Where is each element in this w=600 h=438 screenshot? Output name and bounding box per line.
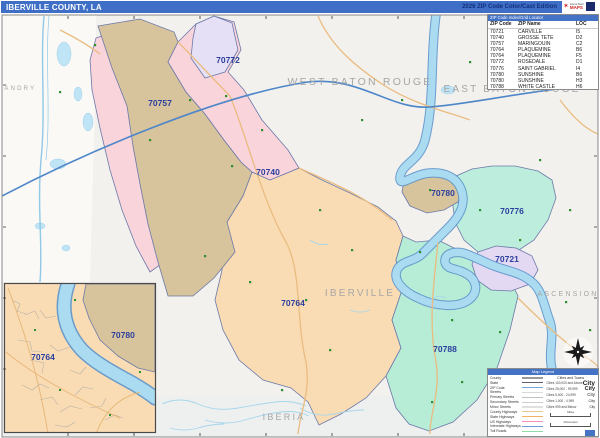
city-label: Cities 5,000 - 24,999 (546, 393, 575, 397)
logo-text: HomeTown MAPS (570, 3, 584, 10)
zip-code-index-table: ZIP Code Index/Grid Locator ZIP Code ZIP… (487, 14, 599, 90)
legend-mini-badge (585, 430, 595, 436)
col-zip-name: ZIP Name (518, 21, 576, 28)
zip-label-70788: 70788 (433, 344, 457, 354)
cell-zip: 70788 (488, 84, 518, 90)
legend-label: State (490, 381, 522, 385)
scale-line (550, 416, 591, 417)
legend-line-sample (522, 416, 543, 417)
publisher-logo: ✶ HomeTown MAPS (562, 0, 599, 13)
table-row: 70788WHITE CASTLEH6 (488, 84, 598, 90)
legend-label: Minor Streets (490, 405, 522, 409)
legend-line-sample (522, 397, 543, 398)
city-sample: City (590, 405, 596, 409)
legend-line-sample (522, 406, 543, 407)
legend-label: Streets (490, 390, 522, 394)
parish-label-west-baton-rouge: WEST BATON ROUGE (288, 76, 433, 88)
zip-label-70776: 70776 (500, 206, 524, 216)
edition-label: 2026 ZIP Code Color/Cast Edition (462, 4, 563, 10)
scale-label: Miles (546, 410, 595, 414)
scale-line (550, 426, 591, 427)
zip-label-70772: 70772 (216, 55, 240, 65)
legend-label: ZIP Code (490, 386, 522, 390)
map-document: WEST BATON ROUGE EAST BATON ROUGE IBERVI… (0, 0, 600, 438)
legend-label: County Highways (490, 410, 522, 414)
legend-line-sample (522, 382, 543, 383)
legend-label: County (490, 376, 522, 380)
legend-label: US Highways (490, 420, 522, 424)
title-bar: IBERVILLE COUNTY, LA 2026 ZIP Code Color… (1, 1, 563, 13)
map-legend: Map Legend County State ZIP Code Streets… (487, 368, 599, 437)
legend-road-items: County State ZIP Code Streets Primary St… (488, 375, 545, 438)
inset-zip-label-70764: 70764 (31, 352, 55, 362)
legend-label: Primary Streets (490, 395, 522, 399)
legend-line-sample (522, 387, 543, 388)
scale-bar-kilometers: Kilometers (546, 420, 595, 429)
city-sample: City (587, 392, 595, 397)
legend-line-sample (522, 421, 543, 422)
inset-map: 70764 70780 (5, 284, 155, 434)
parish-label-iberia: IBERIA (263, 412, 306, 422)
zip-label-70721: 70721 (495, 254, 519, 264)
parish-label-ascension: ASCENSION (537, 291, 598, 298)
logo-brand-main: MAPS (570, 6, 584, 11)
legend-row: Toll Roads (490, 429, 543, 434)
parish-label-st-landry: ST. LANDRY (0, 86, 36, 92)
legend-label: Interstate Highways (490, 424, 522, 428)
cell-name: WHITE CASTLE (518, 84, 576, 90)
legend-label: State Highways (490, 415, 522, 419)
zip-label-70740: 70740 (256, 167, 280, 177)
west-outside-area (2, 15, 96, 282)
city-label: Cities 999 and Below (546, 405, 576, 409)
zip-label-70757: 70757 (148, 98, 172, 108)
legend-cities-column: Cities and Towns Cities 100,000 and Abov… (545, 375, 598, 438)
scale-label: Kilometers (546, 420, 595, 424)
zip-table-column-headers: ZIP Code ZIP Name LOC (488, 21, 598, 29)
zip-label-70780: 70780 (431, 188, 455, 198)
city-row: Cities 999 and BelowCity (546, 404, 595, 410)
logo-block (586, 2, 595, 11)
legend-line-sample (522, 377, 543, 378)
col-loc: LOC (576, 21, 594, 28)
legend-line-sample (522, 402, 543, 403)
city-label: Cities 25,000 - 99,999 (546, 387, 577, 391)
logo-star-icon: ✶ (563, 3, 569, 10)
county-label-iberville: IBERVILLE (325, 288, 395, 299)
page-title: IBERVILLE COUNTY, LA (1, 3, 462, 12)
legend-line-sample (522, 426, 543, 427)
legend-line-sample (522, 392, 543, 393)
city-label: Cities 1,000 - 4,999 (546, 399, 574, 403)
compass-rose (563, 337, 593, 367)
legend-label: Toll Roads (490, 429, 522, 433)
legend-line-sample (522, 431, 543, 432)
scale-bar-miles: Miles (546, 410, 595, 419)
legend-label: Secondary Streets (490, 400, 522, 404)
legend-line-sample (522, 411, 543, 412)
col-zip-code: ZIP Code (488, 21, 518, 28)
cell-loc: H6 (576, 84, 594, 90)
city-sample: City (588, 399, 595, 403)
city-label: Cities 100,000 and Above (546, 381, 582, 385)
inset-zip-label-70780: 70780 (111, 330, 135, 340)
zip-label-70764: 70764 (281, 298, 305, 308)
